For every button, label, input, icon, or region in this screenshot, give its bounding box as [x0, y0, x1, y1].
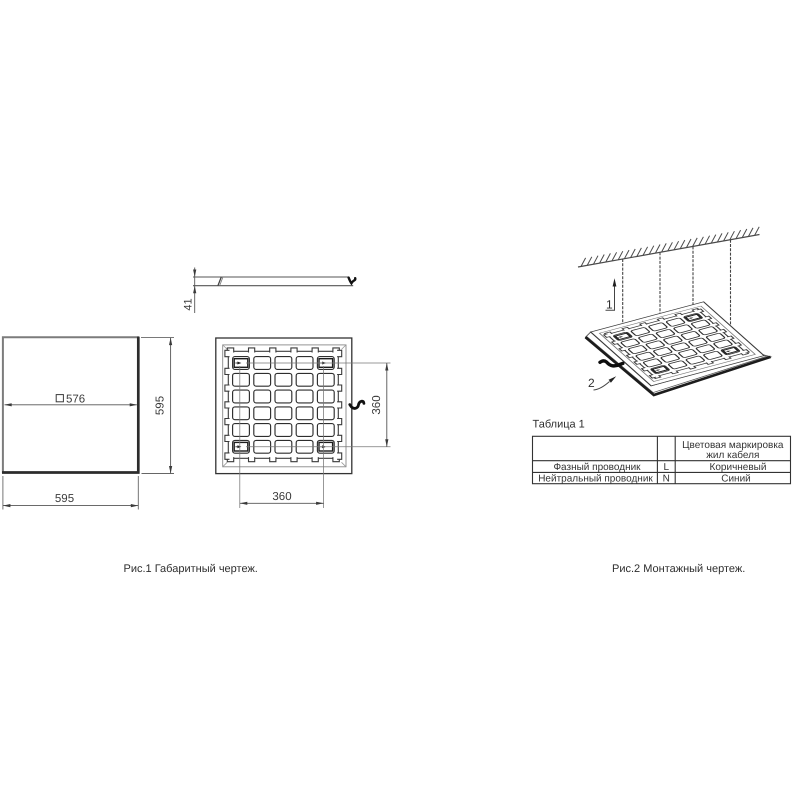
- svg-text:Фазный проводник: Фазный проводник: [553, 462, 641, 473]
- svg-text:Рис.2 Монтажный чертеж.: Рис.2 Монтажный чертеж.: [612, 563, 745, 575]
- svg-text:360: 360: [371, 395, 383, 414]
- svg-text:Таблица 1: Таблица 1: [533, 419, 585, 431]
- svg-text:41: 41: [183, 298, 195, 310]
- svg-text:2: 2: [588, 376, 595, 390]
- svg-text:1: 1: [606, 298, 613, 312]
- svg-text:жил кабеля: жил кабеля: [706, 450, 759, 461]
- svg-text:Синий: Синий: [721, 474, 751, 485]
- svg-text:Нейтральный проводник: Нейтральный проводник: [538, 474, 653, 485]
- svg-text:360: 360: [272, 491, 291, 503]
- svg-text:Коричневый: Коричневый: [710, 462, 767, 473]
- svg-text:576: 576: [66, 393, 85, 405]
- svg-text:595: 595: [55, 493, 74, 505]
- svg-text:595: 595: [155, 396, 167, 415]
- svg-text:N: N: [663, 474, 670, 485]
- svg-text:L: L: [664, 462, 670, 473]
- svg-text:Рис.1 Габаритный чертеж.: Рис.1 Габаритный чертеж.: [124, 563, 258, 575]
